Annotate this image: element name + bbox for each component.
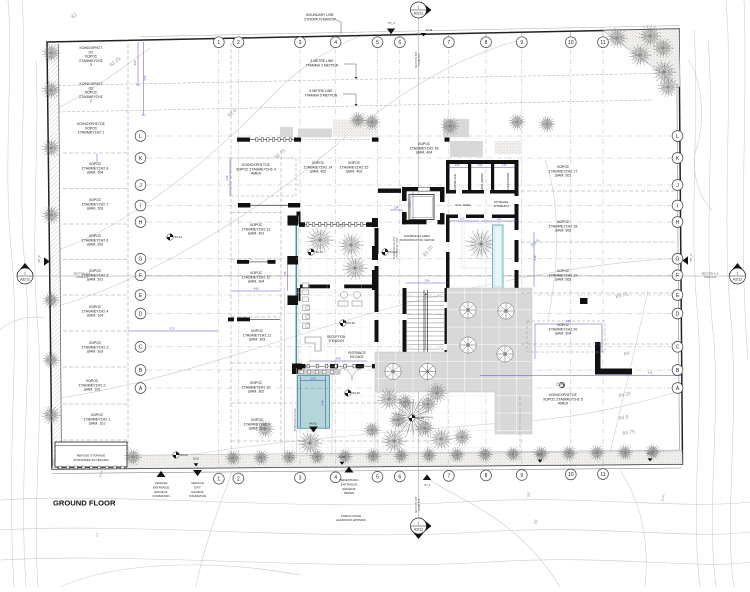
svg-text:3: 3 xyxy=(299,40,302,46)
svg-text:REFUSE STORAGE: REFUSE STORAGE xyxy=(77,454,105,458)
svg-text:5.46: 5.46 xyxy=(321,400,325,406)
svg-text:3.00: 3.00 xyxy=(134,60,137,65)
svg-text:6: 6 xyxy=(398,474,401,480)
svg-text:3 METRE LINE: 3 METRE LINE xyxy=(310,59,334,63)
svg-text:84.45: 84.45 xyxy=(426,29,433,32)
svg-text:ΔΙΑΜ. 103: ΔΙΑΜ. 103 xyxy=(87,350,104,354)
svg-text:1: 1 xyxy=(418,5,420,9)
svg-text:5.00: 5.00 xyxy=(144,75,147,80)
svg-text:I: I xyxy=(140,203,141,209)
svg-text:1: 1 xyxy=(737,271,739,275)
svg-text:1.54: 1.54 xyxy=(394,207,399,210)
svg-text:8: 8 xyxy=(485,473,488,479)
svg-text:TOMH B-B: TOMH B-B xyxy=(417,498,421,511)
svg-text:H: H xyxy=(676,220,680,226)
svg-text:4: 4 xyxy=(334,475,337,481)
svg-text:3: 3 xyxy=(90,63,92,67)
svg-text:ΔΙΑΜ. 304: ΔΙΑΜ. 304 xyxy=(248,280,265,284)
svg-text:ΔΙΑΜ. 201: ΔΙΑΜ. 201 xyxy=(87,278,104,282)
svg-text:4.16: 4.16 xyxy=(534,255,537,260)
svg-text:10: 10 xyxy=(568,472,574,478)
svg-text:3: 3 xyxy=(299,475,302,481)
svg-text:ΔΙΑΜ. 203: ΔΙΑΜ. 203 xyxy=(87,207,104,211)
svg-text:ΔΙΑΜ. 101: ΔΙΑΜ. 101 xyxy=(89,422,106,426)
svg-text:ΔΙΑΜ. 202: ΔΙΑΜ. 202 xyxy=(87,243,104,247)
svg-text:84.05: 84.05 xyxy=(310,422,317,426)
svg-text:2.00: 2.00 xyxy=(310,376,316,380)
svg-text:C: C xyxy=(139,345,143,351)
svg-text:D: D xyxy=(676,311,680,317)
svg-text:4.90: 4.90 xyxy=(566,320,571,323)
svg-text:5: 5 xyxy=(376,475,379,481)
svg-text:84.25: 84.25 xyxy=(180,453,188,457)
svg-text:5.75: 5.75 xyxy=(170,328,175,331)
svg-text:A3212: A3212 xyxy=(733,278,743,282)
svg-text:84.15: 84.15 xyxy=(416,416,424,420)
svg-text:2: 2 xyxy=(90,99,92,103)
svg-text:11: 11 xyxy=(600,472,605,478)
svg-text:9: 9 xyxy=(520,40,523,46)
svg-text:ΔΙΑΜ. 302: ΔΙΑΜ. 302 xyxy=(248,390,265,394)
svg-text:5 METRE LINE: 5 METRE LINE xyxy=(309,89,333,93)
svg-text:A3211: A3211 xyxy=(414,528,423,532)
svg-text:I: I xyxy=(677,203,678,209)
svg-text:L: L xyxy=(139,134,142,140)
svg-text:1.46: 1.46 xyxy=(284,271,287,276)
svg-text:A3211: A3211 xyxy=(414,12,423,16)
svg-text:ΓΡΑΜΜΗ 5 ΜΕΤΡΩΝ: ΓΡΑΜΜΗ 5 ΜΕΤΡΩΝ xyxy=(305,93,338,97)
svg-text:1: 1 xyxy=(217,40,220,46)
svg-text:2.54: 2.54 xyxy=(425,280,430,283)
svg-text:84.13: 84.13 xyxy=(174,235,182,239)
svg-text:ΗΛΕΚΤΡΙΚΟΣ: ΗΛΕΚΤΡΙΚΟΣ xyxy=(506,173,510,191)
svg-text:ΔΙΑΜ. 204: ΔΙΑΜ. 204 xyxy=(87,171,104,175)
svg-text:ΔΙΑΜ. 504: ΔΙΑΜ. 504 xyxy=(555,332,572,336)
svg-text:ΚΟΙΝ.ΧΩΡΟΣ: ΚΟΙΝ.ΧΩΡΟΣ xyxy=(480,173,484,191)
svg-text:ΔΙΑΜ. 501: ΔΙΑΜ. 501 xyxy=(555,174,572,178)
svg-text:G: G xyxy=(139,257,143,263)
svg-text:TOMH B-B: TOMH B-B xyxy=(417,53,421,66)
svg-text:ΠΥΡΙΜΑΧΟ ΓΥΑΛΙ: ΠΥΡΙΜΑΧΟ ΓΥΑΛΙ xyxy=(396,237,399,258)
svg-text:2.66: 2.66 xyxy=(497,219,502,221)
svg-text:2: 2 xyxy=(237,476,240,482)
svg-text:C: C xyxy=(676,345,680,351)
svg-text:2.00: 2.00 xyxy=(478,165,483,167)
svg-text:4: 4 xyxy=(334,40,337,46)
svg-text:11: 11 xyxy=(600,40,605,46)
svg-text:ΚΟΙΝΟΧΡΗΣΤΟΣ ΧΩΡΟΣ: ΚΟΙΝΟΧΡΗΣΤΟΣ ΧΩΡΟΣ xyxy=(400,238,435,242)
svg-text:ΔΙΑΜ. 104: ΔΙΑΜ. 104 xyxy=(87,314,104,318)
svg-text:5: 5 xyxy=(376,40,379,46)
svg-text:7: 7 xyxy=(447,40,450,46)
svg-text:ΔΙΑΜ. 404: ΔΙΑΜ. 404 xyxy=(416,151,433,155)
svg-text:10: 10 xyxy=(568,40,574,46)
svg-text:ΑΠΟΘΗΚΕΣ ΣΚΥΒΑΛΩΝ: ΑΠΟΘΗΚΕΣ ΣΚΥΒΑΛΩΝ xyxy=(73,458,108,462)
svg-text:2.00: 2.00 xyxy=(460,219,465,221)
svg-text:ΣΤΑΘΜΕΥΣΗΣ 1: ΣΤΑΘΜΕΥΣΗΣ 1 xyxy=(78,131,105,135)
svg-text:2.05: 2.05 xyxy=(409,202,412,207)
svg-text:4.11: 4.11 xyxy=(648,372,653,375)
svg-text:ΑΜΕΑ: ΑΜΕΑ xyxy=(558,402,569,406)
svg-text:8: 8 xyxy=(485,40,488,46)
svg-text:D: D xyxy=(139,311,143,317)
svg-text:ΥΠ_4: ΥΠ_4 xyxy=(689,254,693,261)
svg-text:BOUNDARY LINE: BOUNDARY LINE xyxy=(306,13,334,17)
svg-text:ΑΠΟΘΗΚΗ: ΑΠΟΘΗΚΗ xyxy=(493,204,508,208)
svg-text:ΑΜΕΑ: ΑΜΕΑ xyxy=(251,172,262,176)
svg-text:1: 1 xyxy=(24,271,26,275)
svg-text:4.80: 4.80 xyxy=(254,288,259,291)
svg-text:1.50: 1.50 xyxy=(455,165,460,167)
svg-text:ΥΠ_2: ΥΠ_2 xyxy=(37,255,41,262)
svg-text:ΔΙΑΜ. 502: ΔΙΑΜ. 502 xyxy=(555,229,572,233)
svg-text:ΔΙΑΜ. 401: ΔΙΑΜ. 401 xyxy=(248,232,265,236)
svg-text:9: 9 xyxy=(520,473,523,479)
svg-text:ΔΙΑΜ. 403: ΔΙΑΜ. 403 xyxy=(346,170,363,174)
svg-text:ΓΡΑΜΜΗ 3 ΜΕΤΡΩΝ: ΓΡΑΜΜΗ 3 ΜΕΤΡΩΝ xyxy=(306,63,339,67)
svg-text:4.90: 4.90 xyxy=(336,358,341,361)
svg-text:1: 1 xyxy=(418,521,420,525)
svg-text:2: 2 xyxy=(237,40,240,46)
svg-text:ΔΙΑΜ. 102: ΔΙΑΜ. 102 xyxy=(84,388,101,392)
svg-text:W.C. AREA: W.C. AREA xyxy=(455,203,470,207)
svg-text:6: 6 xyxy=(398,40,401,46)
svg-text:2.40: 2.40 xyxy=(226,175,229,180)
svg-text:ΧΩΡΟΣ ΑΗΚ: ΧΩΡΟΣ ΑΗΚ xyxy=(453,174,457,191)
svg-text:ΥΠ_3: ΥΠ_3 xyxy=(388,21,395,25)
svg-text:84.25: 84.25 xyxy=(352,391,360,395)
svg-text:ΣΥΝΟΡΑ ΤΕΜΑΧΙΟΥ: ΣΥΝΟΡΑ ΤΕΜΑΧΙΟΥ xyxy=(304,17,337,21)
svg-text:7: 7 xyxy=(447,474,450,480)
svg-text:1.30: 1.30 xyxy=(502,165,507,167)
svg-text:A3212: A3212 xyxy=(20,278,30,282)
svg-text:TOMH A-A: TOMH A-A xyxy=(704,275,717,279)
svg-text:ΔΙΑΜ. 503: ΔΙΑΜ. 503 xyxy=(555,278,572,282)
svg-text:ΔΙΑΜ. 303: ΔΙΑΜ. 303 xyxy=(249,338,266,342)
svg-text:ΔΙΑΜ. 402: ΔΙΑΜ. 402 xyxy=(310,170,327,174)
svg-text:60.70: 60.70 xyxy=(315,250,323,254)
svg-text:H: H xyxy=(139,220,143,226)
svg-text:L: L xyxy=(676,134,679,140)
svg-text:G: G xyxy=(676,257,680,263)
svg-text:1: 1 xyxy=(217,476,220,482)
